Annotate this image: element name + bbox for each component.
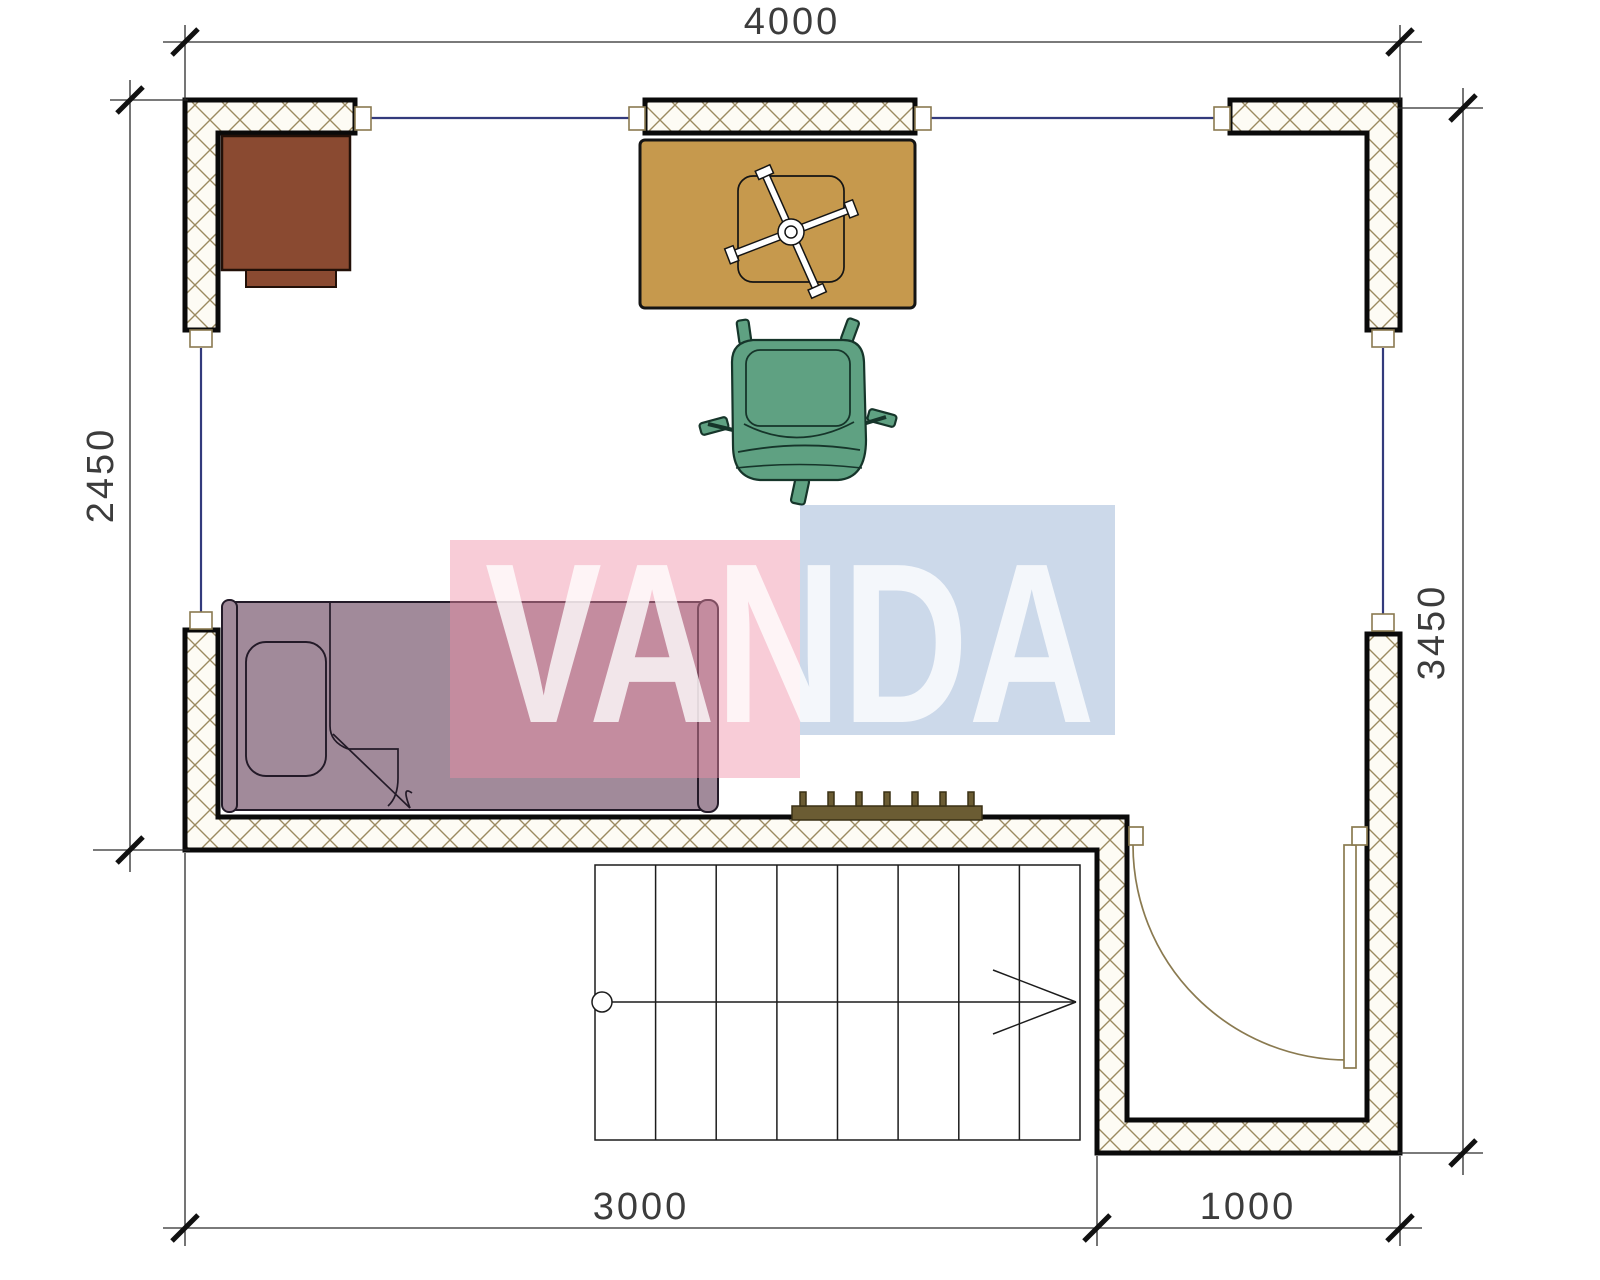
wall-cap (915, 107, 931, 130)
floor-plan-canvas: 4000 2450 3450 300 (0, 0, 1600, 1280)
stairs-walk-line (592, 970, 1076, 1034)
radiator-fin (856, 792, 862, 806)
bed-headboard-post (222, 600, 237, 812)
walk-line-arrow (993, 1002, 1076, 1034)
dim-label-top: 4000 (744, 1, 841, 43)
walk-line-start (592, 992, 612, 1012)
wall-cap (629, 107, 645, 130)
radiator (792, 792, 982, 820)
door (1129, 827, 1367, 1068)
door-hinge-jamb (1352, 827, 1367, 845)
door-strike-jamb (1129, 827, 1143, 845)
wall-cap (190, 612, 212, 629)
wall-cap (190, 330, 212, 347)
desk-top (222, 136, 350, 270)
watermark-text: VANDA (485, 517, 1095, 771)
dimension-right: 3450 (1398, 88, 1483, 1175)
dimension-top: 4000 (163, 1, 1422, 100)
radiator-fin (912, 792, 918, 806)
radiator-fin (800, 792, 806, 806)
wall-cap (1214, 107, 1230, 130)
wall-top-center (645, 100, 915, 133)
dimension-left: 2450 (80, 80, 190, 872)
radiator-fin (828, 792, 834, 806)
wall-top-right (1230, 100, 1400, 330)
desk-drawer (246, 270, 336, 287)
radiator-fin (884, 792, 890, 806)
dimension-bottom: 3000 1000 (163, 853, 1422, 1246)
wall-cap (355, 107, 371, 130)
radiator-fin (940, 792, 946, 806)
door-leaf (1344, 845, 1356, 1068)
radiator-fin (968, 792, 974, 806)
chair-body (732, 340, 866, 480)
door-swing-arc (1133, 845, 1348, 1060)
table (640, 140, 915, 308)
walk-line-arrow (993, 970, 1076, 1002)
desk (222, 136, 350, 287)
dim-label-left: 2450 (80, 427, 122, 524)
dim-label-bottom-left: 3000 (593, 1186, 690, 1228)
wall-cap (1372, 614, 1394, 631)
dim-label-right: 3450 (1411, 584, 1453, 681)
watermark: VANDA (450, 505, 1115, 778)
wall-cap (1372, 330, 1394, 347)
radiator-body (792, 806, 982, 820)
stairs (592, 865, 1080, 1140)
office-chair (699, 318, 897, 505)
dim-label-bottom-right: 1000 (1200, 1186, 1297, 1228)
